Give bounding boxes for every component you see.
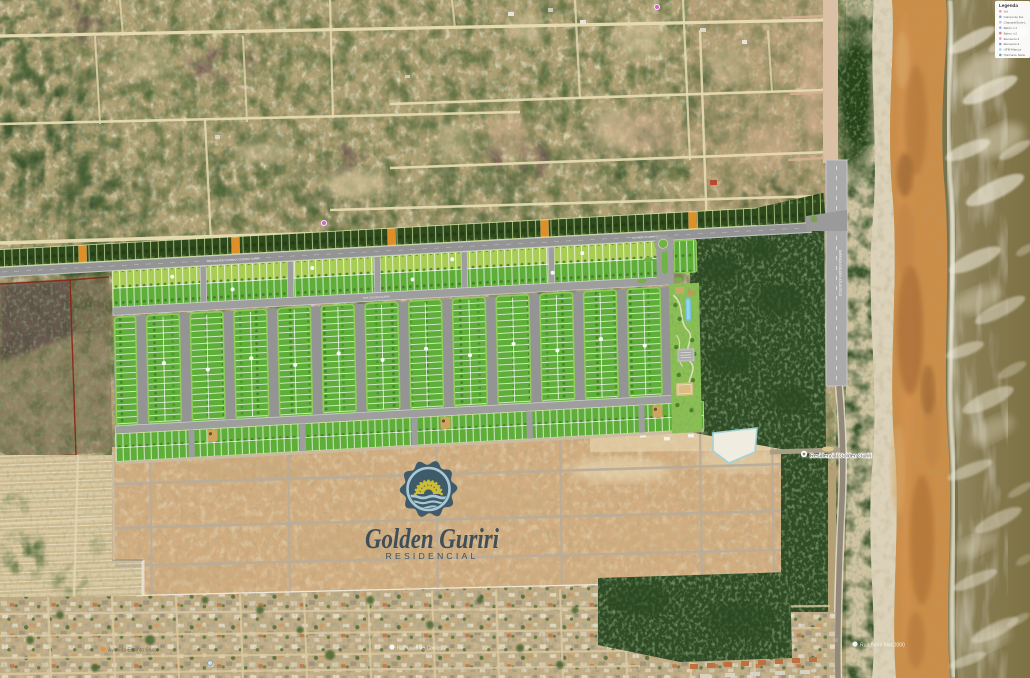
svg-text:Sol: Sol	[1004, 10, 1009, 14]
svg-text:Residencial Golden Guriri: Residencial Golden Guriri	[810, 454, 871, 460]
svg-text:Rua Beira Mar 2000: Rua Beira Mar 2000	[860, 643, 905, 649]
svg-text:RESIDENCIAL: RESIDENCIAL	[386, 551, 479, 561]
svg-text:Chacara/Sorte L: Chacara/Sorte L	[1004, 20, 1027, 24]
svg-text:Elemento 4: Elemento 4	[1004, 42, 1020, 46]
svg-text:Avenida Espirito Santo: Avenida Espirito Santo	[108, 648, 159, 654]
svg-text:Elemento 3: Elemento 3	[1004, 37, 1020, 41]
svg-text:UFM Marcos: UFM Marcos	[1004, 48, 1022, 52]
svg-text:Campo de Fut: Campo de Fut	[1004, 15, 1024, 19]
svg-text:Bairro n 2: Bairro n 2	[1004, 31, 1018, 35]
svg-text:AVENIDA GOLDEN ATLANTICO: AVENIDA GOLDEN ATLANTICO	[838, 250, 842, 297]
svg-text:Bairro n 1: Bairro n 1	[1004, 26, 1018, 30]
svg-text:Horizonte Norte: Horizonte Norte	[1004, 53, 1026, 57]
svg-text:R. Duque de Caxias: R. Duque de Caxias	[397, 646, 442, 652]
svg-text:Legenda: Legenda	[999, 3, 1018, 8]
